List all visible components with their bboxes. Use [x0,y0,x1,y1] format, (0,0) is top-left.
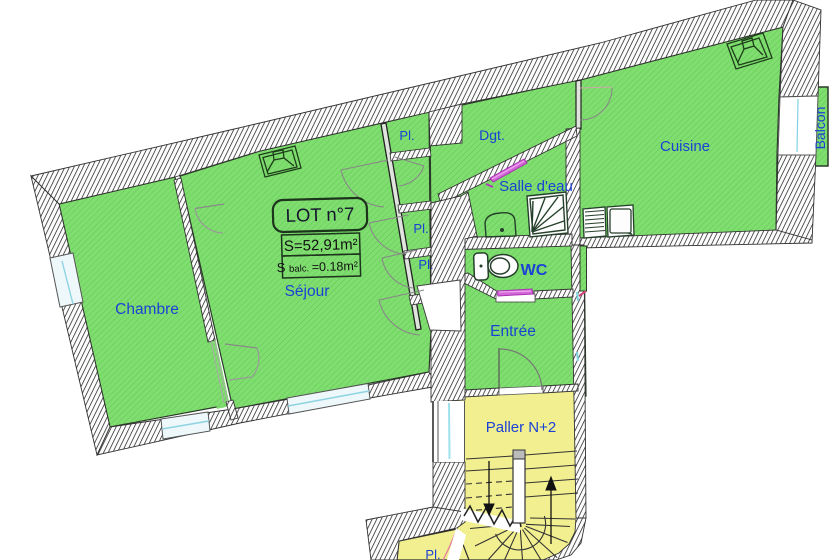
svg-text:Paller N+2: Paller N+2 [486,419,556,436]
svg-text:Séjour: Séjour [285,283,330,300]
svg-text:Pl.: Pl. [418,257,433,272]
svg-text:Salle d'eau: Salle d'eau [499,178,573,195]
svg-text:Cuisine: Cuisine [660,138,710,155]
svg-text:Balcon: Balcon [812,107,828,150]
svg-text:Pl.: Pl. [425,547,440,560]
svg-text:S=52,91m²: S=52,91m² [284,236,358,255]
svg-text:Pl.: Pl. [399,128,414,143]
svg-text:Dgt.: Dgt. [479,127,505,143]
svg-text:LOT n°7: LOT n°7 [285,203,354,226]
svg-text:WC: WC [521,262,548,279]
svg-text:Entrée: Entrée [490,323,536,340]
svg-text:Pl.: Pl. [413,221,428,236]
svg-text:S balc. =0.18m²: S balc. =0.18m² [277,258,359,275]
svg-text:Chambre: Chambre [115,301,179,318]
